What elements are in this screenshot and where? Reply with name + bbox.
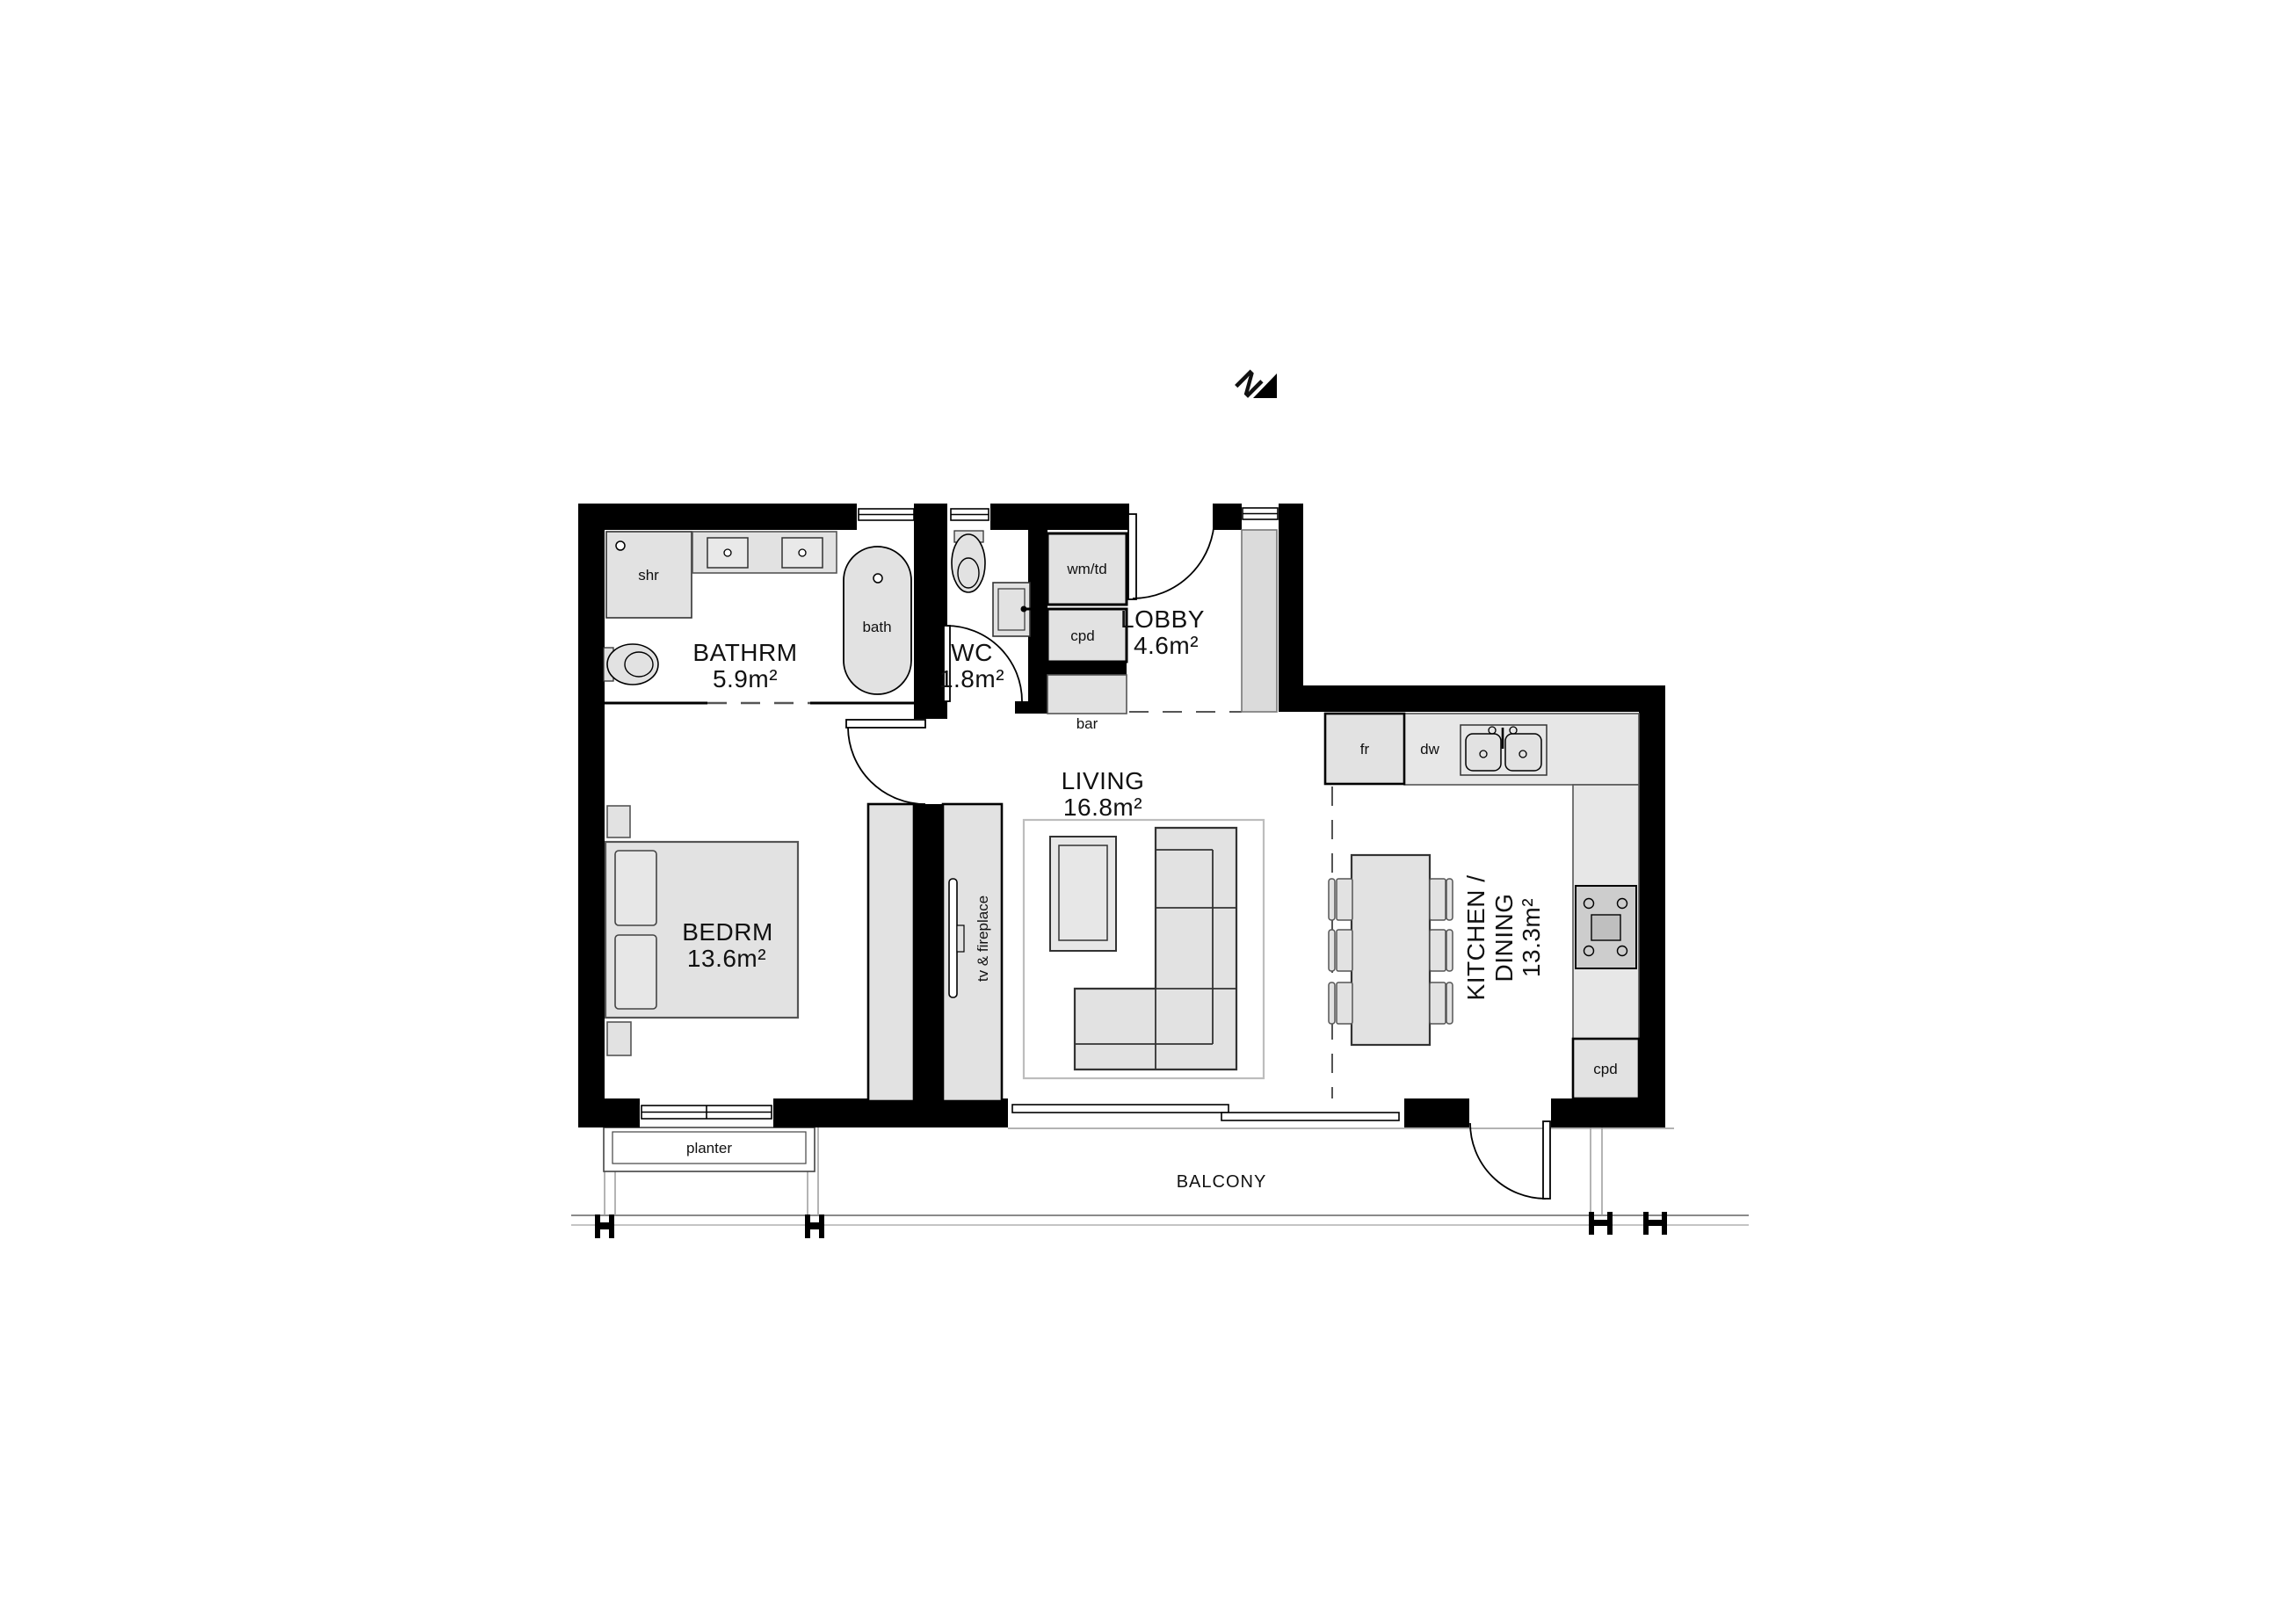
lobby-area: 4.6m² — [1134, 632, 1199, 659]
lobby: wm/td cpd bar LOBBY 4.6m² — [1047, 530, 1277, 732]
column-icon — [595, 1214, 614, 1238]
column-icon — [805, 1214, 824, 1238]
bathroom-label: BATHRM — [692, 639, 797, 666]
bar-counter: bar — [1047, 675, 1127, 732]
tv-fireplace-label: tv & fireplace — [975, 895, 991, 982]
balcony-label: BALCONY — [1177, 1172, 1267, 1192]
tv-fireplace-unit: tv & fireplace — [943, 804, 1002, 1101]
wardrobe — [868, 804, 914, 1101]
service-shaft — [1242, 530, 1277, 712]
shower: shr — [606, 532, 692, 618]
bedroom: tv & fireplace BEDRM 13.6m² — [605, 804, 1002, 1101]
bath-label: bath — [862, 619, 891, 635]
wc: WC 1.8m² — [939, 531, 1041, 692]
dining — [1329, 855, 1453, 1045]
floor-plan-page: N BALCONY — [0, 0, 2276, 1624]
washer-dryer-cupboard: wm/td — [1047, 533, 1127, 605]
bedroom-label: BEDRM — [682, 918, 773, 946]
lobby-label: LOBBY — [1120, 605, 1205, 633]
bathroom-window — [859, 509, 914, 520]
north-label: N — [1229, 363, 1270, 404]
wc-area: 1.8m² — [939, 665, 1004, 692]
shower-label: shr — [638, 567, 659, 584]
living-sliding-door — [1012, 1105, 1399, 1120]
wc-window — [951, 509, 989, 520]
kitchen-label-line1: KITCHEN / — [1462, 875, 1490, 1001]
bedroom-window — [641, 1106, 772, 1119]
lobby-window — [1243, 508, 1278, 519]
kitchen-cupboard: cpd — [1573, 1039, 1639, 1098]
living-label: LIVING — [1062, 767, 1145, 794]
nightstand — [607, 1022, 631, 1055]
living-area: 16.8m² — [1063, 794, 1142, 821]
vanity-sinks — [692, 532, 837, 573]
bathroom-area: 5.9m² — [713, 665, 778, 692]
bedroom-door — [846, 720, 925, 804]
toilet — [604, 644, 658, 685]
kitchen-cupboard-label: cpd — [1593, 1061, 1617, 1077]
bedroom-area: 13.6m² — [687, 945, 766, 972]
floor-plan-drawing: N BALCONY — [0, 0, 2276, 1624]
entry-door — [1128, 514, 1214, 599]
wc-toilet — [952, 531, 985, 592]
bathroom: shr bath BATHRM 5.9m² — [604, 532, 911, 694]
hob — [1576, 886, 1636, 968]
lobby-cupboard: cpd — [1047, 609, 1127, 662]
fridge-label: fr — [1360, 741, 1370, 758]
nightstand — [607, 806, 630, 837]
fridge: fr — [1325, 714, 1404, 784]
planter: planter — [604, 1127, 815, 1171]
dining-table — [1352, 855, 1430, 1045]
lobby-cupboard-label: cpd — [1070, 627, 1094, 644]
wc-label: WC — [951, 639, 993, 666]
kitchen-sink — [1461, 725, 1547, 775]
kitchen-area: 13.3m² — [1518, 898, 1545, 977]
bathtub: bath — [844, 547, 911, 694]
living: LIVING 16.8m² — [1024, 767, 1264, 1078]
washer-dryer-label: wm/td — [1066, 561, 1106, 577]
dishwasher-label: dw — [1420, 741, 1439, 758]
bar-label: bar — [1076, 715, 1098, 732]
coffee-table — [1050, 837, 1116, 951]
north-arrow-icon: N — [1229, 363, 1277, 404]
balcony-door — [1470, 1121, 1550, 1199]
kitchen-label-line2: DINING — [1490, 894, 1518, 982]
planter-label: planter — [686, 1140, 732, 1156]
